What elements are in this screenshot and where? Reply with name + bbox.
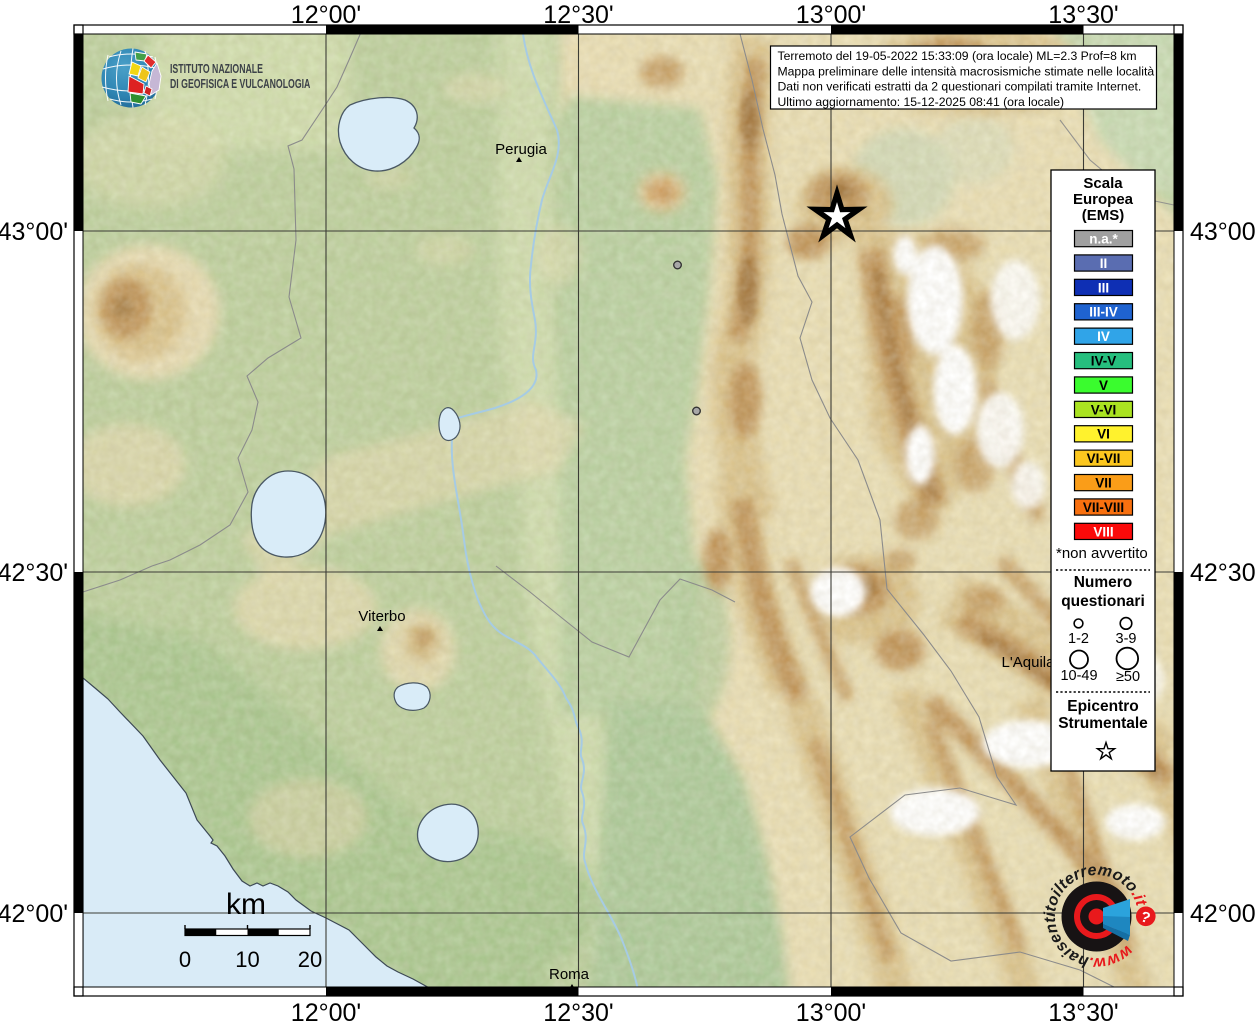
svg-text:42°30': 42°30' (1190, 559, 1256, 587)
svg-text:3-9: 3-9 (1116, 631, 1137, 647)
svg-text:13°00': 13°00' (796, 1, 866, 29)
svg-text:12°00': 12°00' (291, 999, 361, 1024)
svg-text:VII-VIII: VII-VIII (1083, 500, 1124, 515)
svg-text:VI-VII: VI-VII (1087, 451, 1121, 466)
svg-text:13°30': 13°30' (1048, 999, 1118, 1024)
svg-text:13°30': 13°30' (1048, 1, 1118, 29)
svg-text:12°00': 12°00' (291, 1, 361, 29)
svg-text:questionari: questionari (1061, 593, 1145, 610)
svg-text:DI GEOFISICA E VULCANOLOGIA: DI GEOFISICA E VULCANOLOGIA (170, 78, 311, 92)
svg-text:ISTITUTO NAZIONALE: ISTITUTO NAZIONALE (170, 63, 263, 77)
svg-text:III: III (1098, 280, 1109, 295)
svg-text:10: 10 (235, 947, 259, 972)
svg-text:Strumentale: Strumentale (1058, 715, 1148, 732)
svg-text:20: 20 (298, 947, 322, 972)
svg-text:IV: IV (1097, 329, 1110, 344)
svg-text:Dati non verificati estratti d: Dati non verificati estratti da 2 questi… (778, 80, 1142, 94)
svg-text:Roma: Roma (549, 966, 590, 983)
svg-text:Ultimo aggiornamento: 15-12-20: Ultimo aggiornamento: 15-12-2025 08:41 (… (778, 95, 1065, 109)
svg-text:Europea: Europea (1073, 191, 1134, 208)
svg-text:1-2: 1-2 (1068, 631, 1089, 647)
svg-text:IV-V: IV-V (1091, 354, 1117, 369)
svg-text:Perugia: Perugia (495, 141, 547, 158)
svg-text:II: II (1100, 256, 1108, 271)
svg-text:VI: VI (1097, 427, 1110, 442)
svg-text:V-VI: V-VI (1091, 402, 1117, 417)
svg-text:Numero: Numero (1074, 574, 1133, 591)
svg-text:12°30': 12°30' (543, 999, 613, 1024)
svg-text:L'Aquila: L'Aquila (1002, 654, 1056, 671)
svg-text:43°00': 43°00' (0, 218, 68, 246)
svg-text:*non avvertito: *non avvertito (1056, 545, 1148, 562)
svg-text:Scala: Scala (1083, 175, 1123, 192)
svg-text:13°00': 13°00' (796, 999, 866, 1024)
svg-text:VIII: VIII (1093, 524, 1113, 539)
svg-text:n.a.*: n.a.* (1089, 232, 1118, 247)
svg-text:42°30': 42°30' (0, 559, 68, 587)
svg-text:Mappa preliminare delle intens: Mappa preliminare delle intensità macros… (778, 64, 1155, 78)
svg-text:42°00': 42°00' (0, 900, 68, 928)
svg-text:VII: VII (1095, 476, 1112, 491)
svg-text:Viterbo: Viterbo (358, 608, 405, 625)
svg-text:(EMS): (EMS) (1082, 207, 1125, 224)
svg-text:43°00': 43°00' (1190, 218, 1256, 246)
svg-text:10-49: 10-49 (1060, 668, 1097, 684)
svg-text:Terremoto del 19-05-2022 15:33: Terremoto del 19-05-2022 15:33:09 (ora l… (778, 49, 1137, 63)
svg-text:0: 0 (179, 947, 191, 972)
svg-text:III-IV: III-IV (1089, 305, 1118, 320)
svg-text:42°00': 42°00' (1190, 900, 1256, 928)
svg-text:km: km (226, 888, 266, 921)
svg-text:12°30': 12°30' (543, 1, 613, 29)
svg-text:V: V (1099, 378, 1108, 393)
svg-text:Epicentro: Epicentro (1067, 698, 1138, 715)
svg-text:≥50: ≥50 (1116, 669, 1140, 685)
